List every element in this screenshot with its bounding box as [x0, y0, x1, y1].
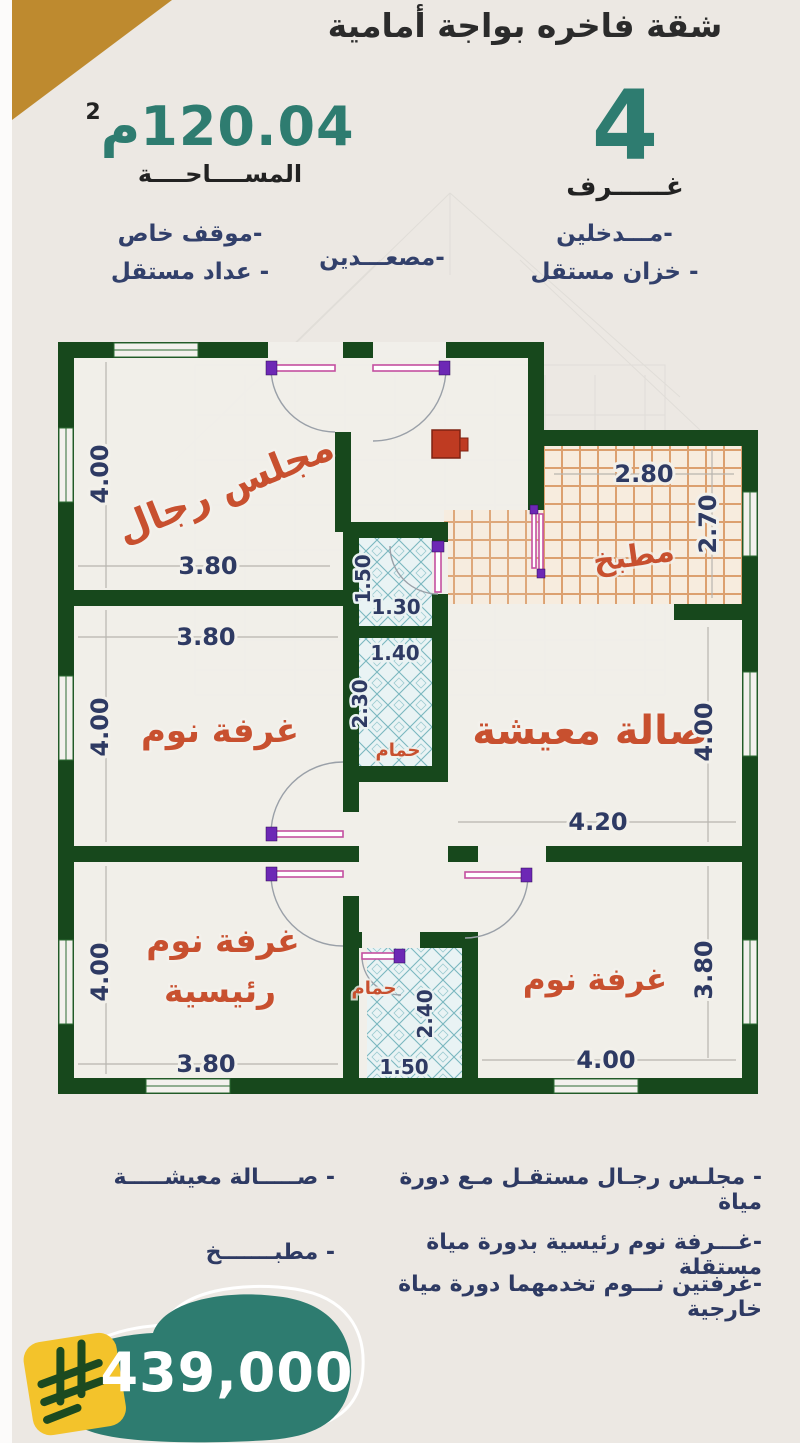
bath1-label: حمام [376, 740, 421, 761]
feature-tank: - خزان مستقل [522, 254, 707, 292]
detail-right-3: -غرفتين نـــوم تخدمهما دورة مياة خارجية [380, 1272, 762, 1322]
area-label: المســــاحــــة [95, 160, 345, 188]
master-label-line2: رئيسية [164, 971, 276, 1010]
bedroom2-label: غرفة نوم [523, 962, 667, 998]
area-value: 120.04 [140, 100, 354, 154]
price-value: 439,000 [101, 1341, 354, 1404]
master-h-dim: 4.00 [86, 942, 114, 1001]
bedroom1-label: غرفة نوم [141, 711, 299, 751]
bedroom1-w-dim: 3.80 [176, 623, 235, 651]
features-left: -موقف خاص - عداد مستقل [90, 216, 290, 292]
bedroom2-w-dim: 4.00 [576, 1046, 635, 1074]
floor-plan: مجلس رجال مطبخ غرفة نوم حمام صالة معيشة … [58, 342, 758, 1102]
area-superscript: 2 [85, 102, 100, 124]
price-banner: 439,000 [5, 1283, 375, 1443]
rooms-count: 4 [545, 78, 705, 174]
bath2-label: حمام [352, 978, 397, 999]
bath1-w-dim: 1.40 [370, 641, 419, 665]
features-middle: -مصعـــدين [292, 240, 472, 278]
master-w-dim: 3.80 [176, 1050, 235, 1078]
living-h-dim: 4.00 [690, 702, 718, 761]
features-right: -مـــدخلين - خزان مستقل [522, 216, 707, 292]
bedroom1-h-dim: 4.00 [86, 697, 114, 756]
bath1-h-dim: 2.30 [348, 679, 372, 728]
wc-w-dim: 1.30 [371, 595, 420, 619]
feature-entrances: -مـــدخلين [522, 216, 707, 254]
flyer-page: شقة فاخره بواجة أمامية 4 غــــــرف 2م120… [0, 0, 800, 1443]
bath2-w-dim: 1.50 [379, 1055, 428, 1079]
rooms-label: غــــــرف [540, 172, 710, 202]
kitchen-w-dim: 2.80 [614, 460, 673, 488]
kitchen-h-dim: 2.70 [694, 494, 722, 553]
majlis-h-dim: 4.00 [86, 444, 114, 503]
feature-parking: -موقف خاص [90, 216, 290, 254]
detail-left-1: - صـــــالة معيشـــــة [55, 1165, 335, 1190]
master-label-line1: غرفة نوم [146, 921, 299, 961]
detail-right-1: - مجلـس رجـال مستقـل مـع دورة مياة [380, 1165, 762, 1215]
feature-meter: - عداد مستقل [90, 254, 290, 292]
page-title: شقة فاخره بواجة أمامية [300, 6, 750, 45]
living-label: صالة معيشة [472, 708, 708, 754]
bath2-h-dim: 2.40 [413, 989, 437, 1038]
bedroom2-h-dim: 3.80 [690, 940, 718, 999]
area-block: 2م120.04 المســــاحــــة [95, 100, 345, 188]
living-w-dim: 4.20 [568, 808, 627, 836]
left-edge-strip [0, 0, 12, 1443]
feature-elevators: -مصعـــدين [292, 240, 472, 278]
area-unit: م [101, 100, 141, 154]
detail-left-2: - مطبـــــــخ [55, 1240, 335, 1265]
majlis-w-dim: 3.80 [178, 552, 237, 580]
